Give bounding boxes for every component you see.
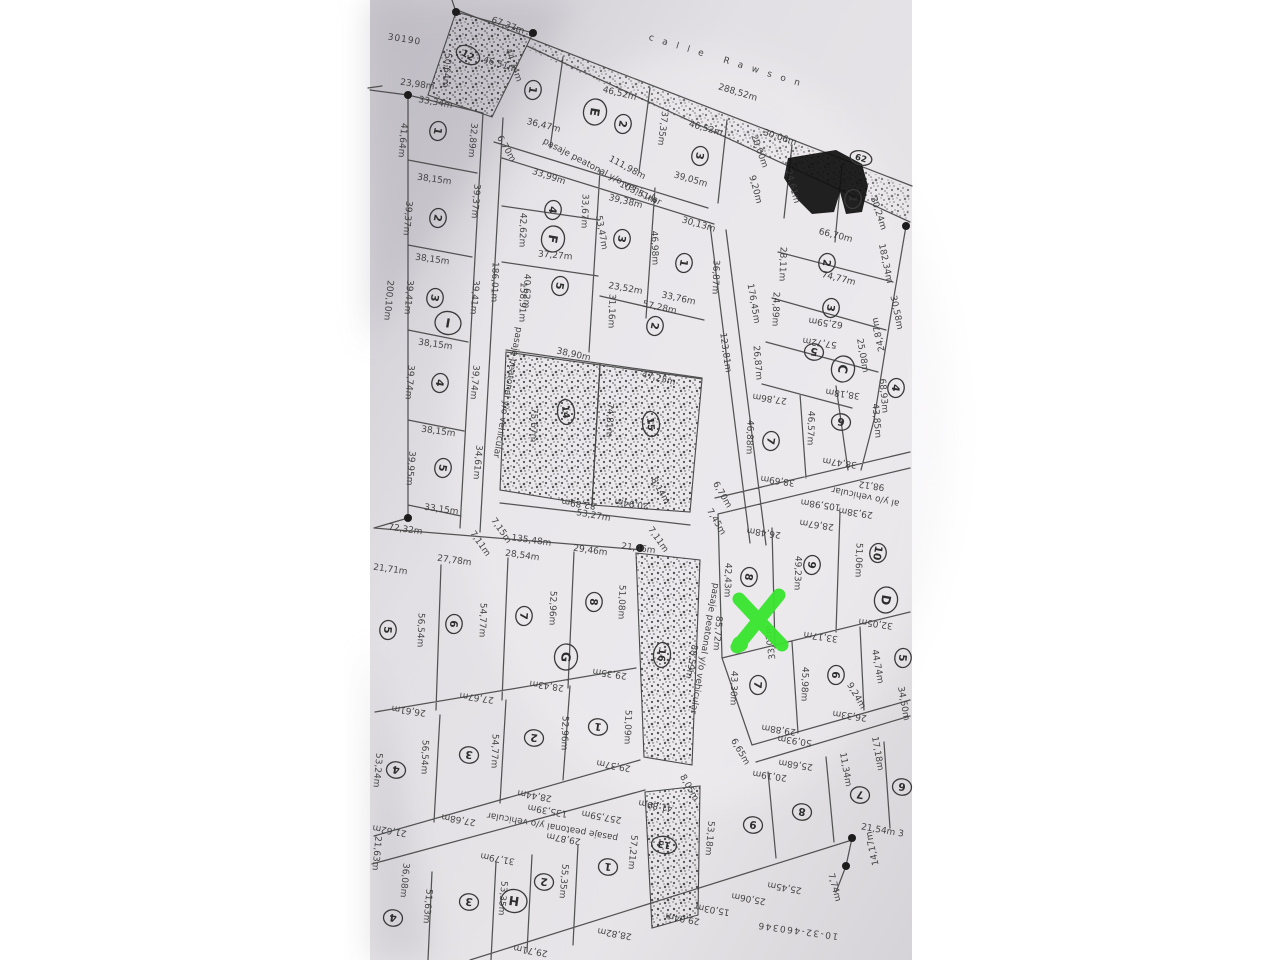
measurement-label: 31,16m <box>605 294 616 329</box>
measurement-label: 33,67m <box>578 194 589 229</box>
measurement-label: 46,98m <box>648 230 659 265</box>
measurement-label: 28,11m <box>776 247 787 282</box>
measurement-label: 51,09m <box>621 710 632 745</box>
measurement-label: 54,77m <box>488 734 499 769</box>
lot-number: 16 <box>655 648 667 663</box>
lot-number: 6 <box>829 671 842 679</box>
measurement-label: 42,62m <box>516 213 527 248</box>
lot-number: 10 <box>870 545 884 561</box>
lot-number: G <box>558 651 574 663</box>
survey-vertex-dot <box>842 862 850 870</box>
measurement-label: 56,54m <box>418 740 429 775</box>
lot-number: 15 <box>644 417 656 431</box>
survey-vertex-dot <box>848 834 856 842</box>
measurement-label: 45,98m <box>798 667 809 702</box>
survey-vertex-dot <box>529 29 537 37</box>
measurement-label: 186,01m <box>488 262 499 303</box>
measurement-label: 52,96m <box>546 591 557 626</box>
lot-number: 8 <box>587 598 600 606</box>
measurement-label: 36,87m <box>709 260 720 295</box>
survey-vertex-dot <box>902 222 910 230</box>
measurement-label: 51,08m <box>615 585 626 620</box>
lot-number: 13 <box>657 838 672 851</box>
survey-vertex-dot <box>404 91 412 99</box>
lot-number: 7 <box>751 681 764 689</box>
measurement-label: 75,67m <box>527 408 538 443</box>
measurement-label: 46,57m <box>804 411 815 446</box>
measurement-label: 43,30m <box>727 671 738 706</box>
measurement-label: 74,81m <box>603 403 614 438</box>
measurement-label: 46,88m <box>743 420 754 455</box>
survey-vertex-dot <box>452 8 460 16</box>
screenshot-stage: 30190calle Rawson288,52m67,37m46,51m50,6… <box>0 0 1280 960</box>
measurement-label: 52,96m <box>558 716 569 751</box>
lot-number: 7 <box>517 612 530 620</box>
measurement-label: 56,54m <box>414 613 425 648</box>
lot-number: 5 <box>896 654 909 662</box>
measurement-label: 42,43m <box>721 563 732 598</box>
measurement-label: 49,23m <box>791 556 802 591</box>
lot-number: 14 <box>559 405 571 420</box>
measurement-label: 24,89m <box>769 292 780 327</box>
survey-vertex-dot <box>404 514 412 522</box>
measurement-label: 158,91m <box>516 282 527 323</box>
lot-number: 6 <box>447 620 460 628</box>
lot-number: H <box>508 893 520 909</box>
measurement-label: 54,77m <box>476 603 487 638</box>
scanned-plan-photo: 30190calle Rawson288,52m67,37m46,51m50,6… <box>0 0 1280 960</box>
lot-number: 5 <box>381 626 394 634</box>
measurement-label: 51,06m <box>852 543 863 578</box>
